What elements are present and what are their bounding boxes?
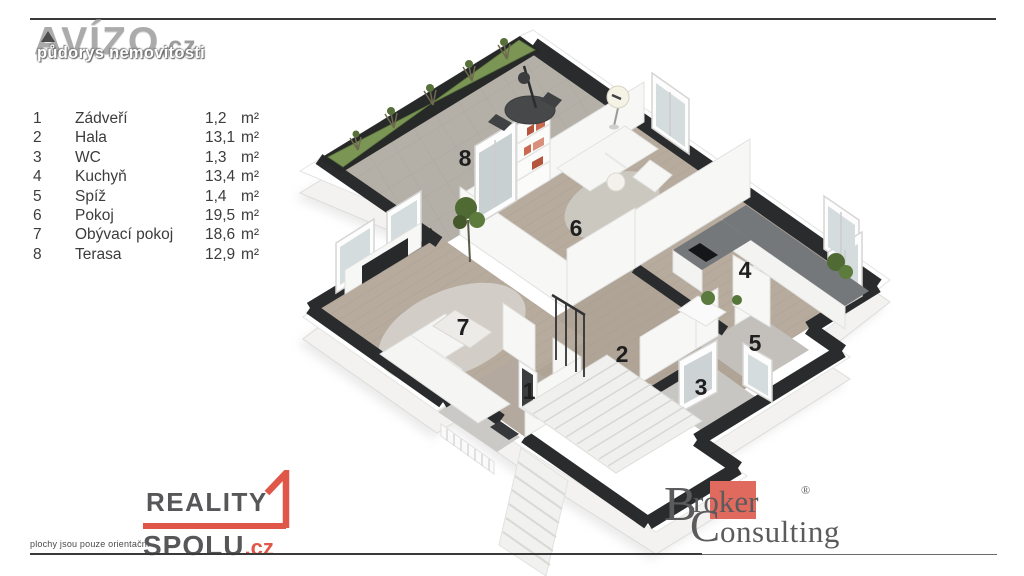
broker-c-initial: C: [690, 504, 720, 549]
bottom-rule-left: [30, 553, 702, 555]
room-label-8: 8: [459, 145, 472, 171]
room-label-3: 3: [695, 374, 708, 400]
realityspolu-logo: REALITY SPOLU.cz: [143, 487, 313, 567]
disclaimer-text: plochy jsou pouze orientační: [30, 539, 150, 549]
broker-consulting-logo: B roker ® C onsulting: [660, 477, 1005, 552]
room-label-2: 2: [616, 341, 629, 367]
page: AVÍZO.cz půdorys nemovitosti 1Zádveří1,2…: [0, 0, 1024, 576]
spolu-text: SPOLU.cz: [143, 530, 274, 562]
room-label-5: 5: [749, 330, 762, 356]
room-label-7: 7: [457, 314, 470, 340]
room-label-6: 6: [570, 215, 583, 241]
room-label-4: 4: [739, 257, 752, 283]
pendant-lamp: [518, 72, 530, 84]
spolu-tld: .cz: [244, 535, 273, 560]
reality-text: REALITY: [146, 487, 268, 518]
room-label-1: 1: [523, 378, 536, 404]
broker-onsulting-text: onsulting: [720, 516, 840, 547]
bottom-rule-right: [702, 554, 997, 555]
registered-mark: ®: [801, 483, 810, 498]
side-table: [607, 173, 625, 191]
